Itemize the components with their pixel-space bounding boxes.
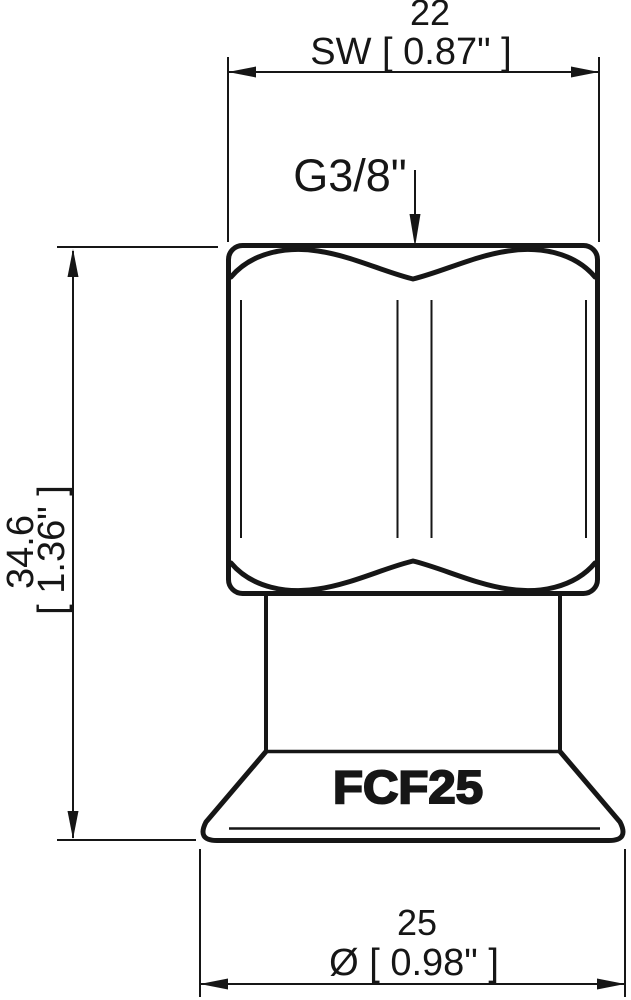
dim-height-arrowhead-bottom-icon (68, 811, 79, 839)
dim-diameter-inch-label: Ø [ 0.98" ] (329, 942, 499, 984)
part-outline: FCF25 (203, 246, 623, 841)
dim-sw-inch-label: SW [ 0.87" ] (310, 31, 511, 73)
dimension-cup-diameter: 25 Ø [ 0.98" ] (200, 849, 625, 997)
thread-arrowhead-icon (410, 214, 421, 247)
dim-diameter-arrowhead-left-icon (200, 979, 228, 990)
dim-sw-arrowhead-left-icon (228, 67, 256, 78)
hex-nut-body (229, 246, 598, 594)
dimension-width-across-flats: 22 SW [ 0.87" ] (228, 0, 599, 242)
thread-callout: G3/8" (293, 150, 420, 247)
dimension-overall-height: 34.6 [ 1.36" ] (0, 247, 218, 840)
suction-cup-drawing: FCF25 G3/8" 22 SW [ 0.87" ] 34.6 [ 1.36"… (0, 0, 631, 1000)
dim-height-inch-value: [ 1.36" ] (31, 485, 73, 615)
dim-sw-mm-value: 22 (410, 0, 450, 33)
dim-sw-arrowhead-right-icon (571, 67, 599, 78)
dim-height-arrowhead-top-icon (68, 249, 79, 277)
thread-size-label: G3/8" (293, 150, 407, 201)
dim-diameter-mm-value: 25 (397, 902, 437, 943)
technical-drawing-canvas: FCF25 G3/8" 22 SW [ 0.87" ] 34.6 [ 1.36"… (0, 0, 631, 1000)
dim-diameter-arrowhead-right-icon (597, 979, 625, 990)
product-code-label: FCF25 (333, 761, 483, 813)
